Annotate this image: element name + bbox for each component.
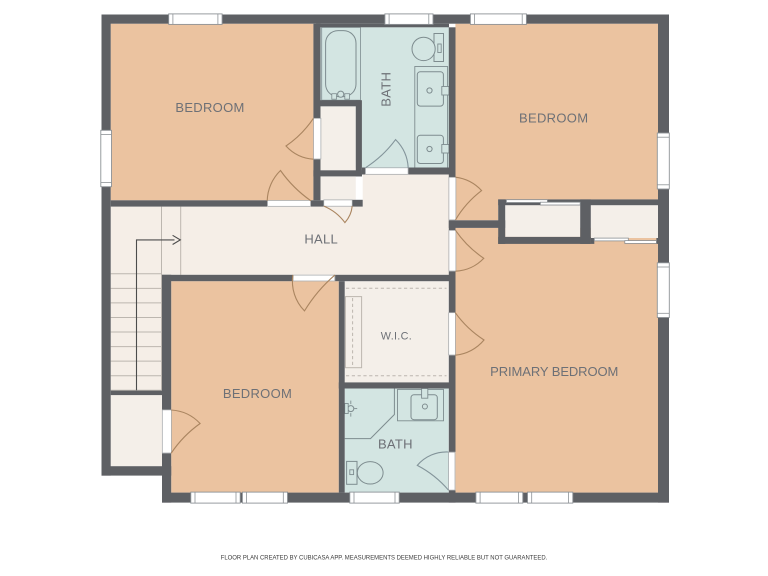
svg-text:BEDROOM: BEDROOM [175,100,244,115]
svg-text:BEDROOM: BEDROOM [223,386,292,401]
svg-text:HALL: HALL [304,232,338,247]
svg-text:PRIMARY BEDROOM: PRIMARY BEDROOM [490,364,618,379]
svg-text:BATH: BATH [378,437,413,452]
svg-text:FLOOR PLAN CREATED BY CUBICASA: FLOOR PLAN CREATED BY CUBICASA APP. MEAS… [221,556,548,562]
svg-text:BATH: BATH [378,72,393,107]
svg-text:W.I.C.: W.I.C. [381,330,412,342]
svg-text:BEDROOM: BEDROOM [519,110,588,125]
